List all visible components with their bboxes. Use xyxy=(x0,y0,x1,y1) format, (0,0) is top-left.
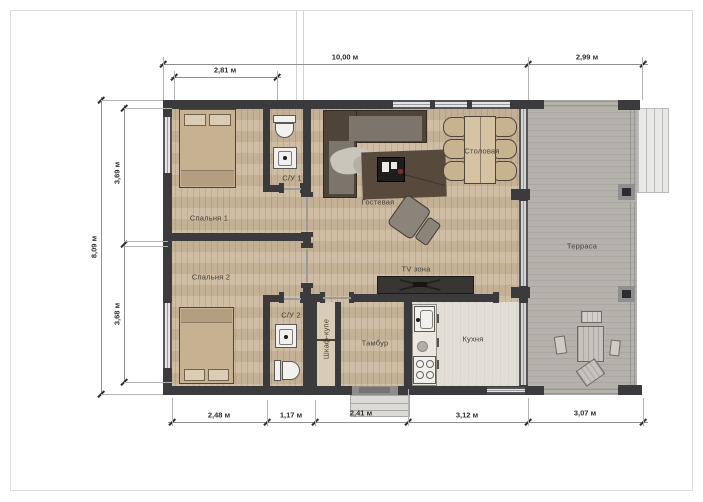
terrace-railing xyxy=(544,389,620,394)
pillow-icon xyxy=(184,114,206,126)
faucet-icon xyxy=(416,318,420,322)
guide-line xyxy=(296,11,297,100)
kitchen-sink-icon xyxy=(414,306,435,332)
window xyxy=(163,303,172,368)
tv-icon xyxy=(399,278,441,292)
dim-line xyxy=(101,97,102,395)
dim-label-bottom-5: 3,07 м xyxy=(574,409,596,418)
chair-icon xyxy=(495,161,517,181)
window-glass-line xyxy=(167,303,168,368)
dim-extension xyxy=(124,241,168,242)
dim-extension xyxy=(101,394,163,395)
dim-extension xyxy=(174,71,175,100)
sink-icon xyxy=(273,147,297,169)
dim-extension xyxy=(101,100,163,101)
dim-label-bottom-1: 2,48 м xyxy=(208,411,230,420)
outdoor-table-icon xyxy=(577,326,604,362)
window xyxy=(163,117,172,173)
terrace-railing xyxy=(630,302,635,386)
tray-icon xyxy=(391,162,397,169)
dim-extension xyxy=(643,398,644,426)
chair-icon xyxy=(495,117,517,137)
step-line xyxy=(351,403,409,404)
blanket-icon xyxy=(181,309,232,323)
dim-extension xyxy=(163,57,164,100)
room-label-dining: Столовая xyxy=(464,147,499,156)
terrace-railing xyxy=(630,109,635,185)
door-leaf xyxy=(284,298,301,300)
floor-plan-canvas: Спальня 1 С/У 1 Спальня 2 С/У 2 Гостевая… xyxy=(0,0,703,502)
room-label-bathroom2: С/У 2 xyxy=(281,311,301,320)
wall xyxy=(335,302,341,386)
dim-label-top-sub: 2,81 м xyxy=(214,66,236,75)
pillow-icon xyxy=(184,369,205,381)
glass-wall xyxy=(519,109,528,189)
pillow-icon xyxy=(209,114,231,126)
wall xyxy=(311,302,317,386)
dim-label-top-main: 10,00 м xyxy=(332,53,358,62)
dim-extension xyxy=(172,398,173,426)
door-leaf xyxy=(306,249,308,282)
room-label-kitchen: Кухня xyxy=(462,335,483,344)
wall-post xyxy=(511,189,530,200)
window-glass-line xyxy=(523,109,524,189)
double-bed-icon xyxy=(179,109,236,188)
blanket-icon xyxy=(181,170,234,186)
dim-extension xyxy=(528,57,529,100)
terrace-corner xyxy=(618,100,640,110)
dim-line xyxy=(171,77,281,78)
dim-label-left-lower: 3,68 м xyxy=(113,303,122,325)
window-glass-line xyxy=(523,303,524,385)
window-mullion xyxy=(467,100,472,109)
outdoor-bench-icon xyxy=(581,311,602,323)
door-jamb xyxy=(301,283,313,288)
terrace-railing xyxy=(630,202,635,287)
window-mullion xyxy=(430,100,435,109)
dim-extension xyxy=(124,382,172,383)
wall xyxy=(263,295,270,386)
window-glass-line xyxy=(167,117,168,173)
terrace-post xyxy=(622,188,631,196)
chair-icon xyxy=(443,139,465,159)
window-glass-line xyxy=(393,104,510,105)
room-label-bedroom2: Спальня 2 xyxy=(192,273,230,282)
dim-extension xyxy=(642,57,643,100)
dim-extension xyxy=(267,400,268,426)
dim-extension xyxy=(315,400,316,426)
sofa-cushion xyxy=(349,116,422,141)
faucet-icon xyxy=(284,335,288,339)
tray-icon xyxy=(382,162,389,172)
toilet-tank-icon xyxy=(274,360,281,381)
glass-wall xyxy=(519,201,528,286)
terrace-corner xyxy=(618,385,642,395)
dim-label-left-total: 8,09 м xyxy=(90,236,99,258)
terrace-post xyxy=(622,290,631,298)
door-jamb xyxy=(301,192,313,197)
burner-icon xyxy=(426,371,434,379)
guide-line xyxy=(303,11,304,100)
room-label-wardrobe: Шкаф-купе xyxy=(322,319,331,359)
tv-screen xyxy=(413,282,427,287)
room-label-tv-zone: TV зона xyxy=(402,265,431,274)
terrace-railing xyxy=(544,101,620,106)
wall xyxy=(352,294,497,302)
burner-icon xyxy=(426,360,434,368)
door-mat xyxy=(359,387,390,393)
dim-extension xyxy=(124,108,172,109)
cabinet-handle xyxy=(437,314,439,323)
room-label-living: Гостевая xyxy=(362,198,395,207)
outdoor-chair-icon xyxy=(554,335,567,354)
door-leaf xyxy=(323,297,351,299)
wall xyxy=(263,109,270,192)
room-label-bedroom1: Спальня 1 xyxy=(190,214,228,223)
wall xyxy=(404,302,412,386)
faucet-icon xyxy=(283,156,287,160)
appliance-icon xyxy=(417,341,428,352)
door-leaf xyxy=(284,188,301,190)
cabinet-handle xyxy=(437,360,439,369)
door-jamb xyxy=(493,292,499,303)
chair-icon xyxy=(443,117,465,137)
dim-label-top-terrace: 2,99 м xyxy=(576,53,598,62)
toilet-tank-icon xyxy=(273,115,296,123)
wall xyxy=(172,233,303,241)
chair-icon xyxy=(443,161,465,181)
stove-icon xyxy=(413,356,436,384)
door-leaf xyxy=(306,198,308,231)
dim-extension xyxy=(528,398,529,426)
glass-wall xyxy=(519,303,528,385)
terrace-corner xyxy=(528,100,544,109)
door-jamb xyxy=(301,243,313,248)
cabinet-handle xyxy=(437,338,439,347)
sink-icon xyxy=(275,324,297,348)
window xyxy=(487,387,525,394)
dim-label-bottom-3: 2,41 м xyxy=(350,409,372,418)
room-label-terrace: Терраса xyxy=(567,242,597,251)
room-label-bathroom1: С/У 1 xyxy=(282,174,302,183)
wall xyxy=(163,386,352,395)
terrace-corner xyxy=(528,386,544,395)
dim-extension xyxy=(124,246,168,247)
dim-extension xyxy=(408,389,409,426)
burner-icon xyxy=(416,360,424,368)
burner-icon xyxy=(416,371,424,379)
sink-basin xyxy=(420,310,433,329)
room-label-hall: Тамбур xyxy=(362,339,389,348)
wall-post xyxy=(511,287,530,298)
terrace-stairs xyxy=(637,108,669,193)
dim-label-left-upper: 3,69 м xyxy=(113,162,122,184)
pillow-icon xyxy=(208,369,229,381)
coffee-table-icon xyxy=(377,157,405,182)
window-glass-line xyxy=(523,201,524,286)
outdoor-chair-icon xyxy=(609,340,621,357)
dim-label-bottom-2: 1,17 м xyxy=(280,411,302,420)
dim-label-bottom-4: 3,12 м xyxy=(456,411,478,420)
double-bed-icon xyxy=(179,307,234,384)
decor-icon xyxy=(398,169,403,174)
window-glass-line xyxy=(487,390,525,391)
window xyxy=(393,100,510,109)
door-jamb xyxy=(301,232,313,237)
dim-extension xyxy=(277,71,278,100)
